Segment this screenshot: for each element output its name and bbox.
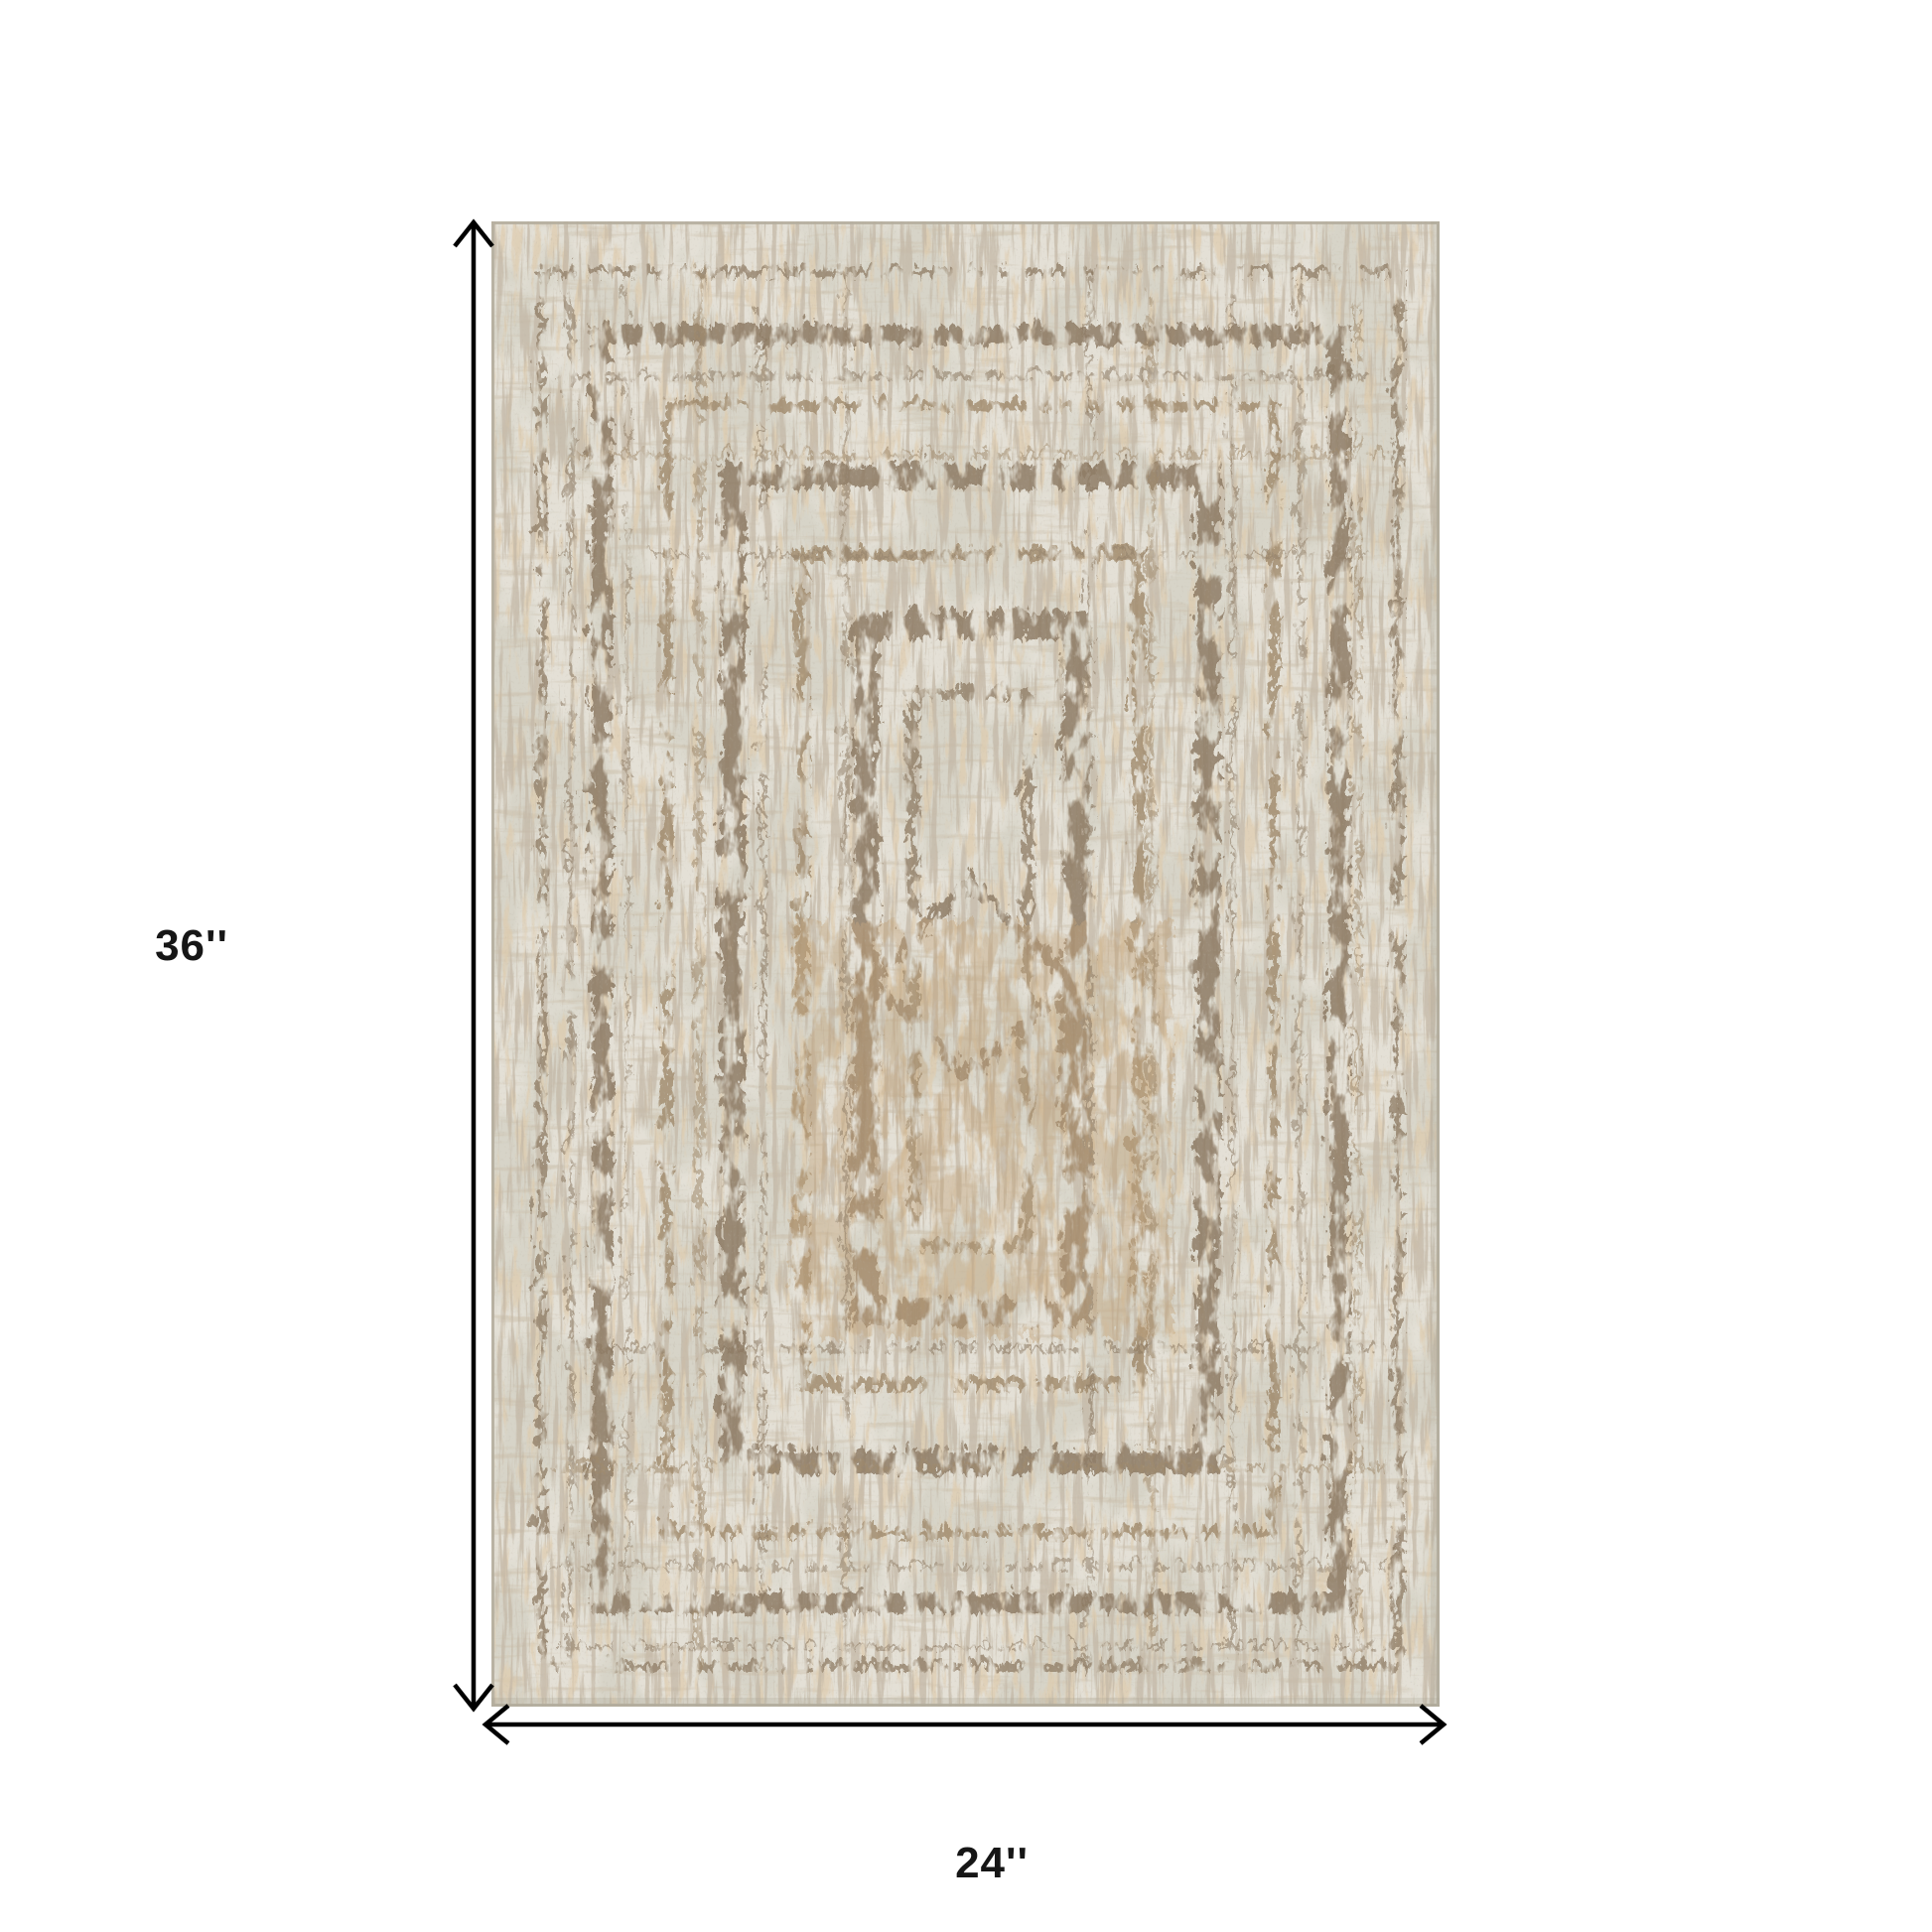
width-dimension-label: 24'' xyxy=(912,1842,1071,1885)
horizontal-dimension-arrow-icon xyxy=(485,1706,1444,1743)
vertical-dimension-arrow-icon xyxy=(455,222,492,1709)
rug-texture xyxy=(491,221,1440,1707)
product-dimension-diagram: 36'' 24'' xyxy=(0,0,1932,1932)
rug-bottom-shadow xyxy=(491,1698,1440,1707)
rug-speckle-layer xyxy=(491,221,1440,1707)
height-dimension-label: 36'' xyxy=(112,924,271,968)
rug-right-shadow xyxy=(1431,221,1440,1707)
rug-product-image xyxy=(491,221,1440,1707)
